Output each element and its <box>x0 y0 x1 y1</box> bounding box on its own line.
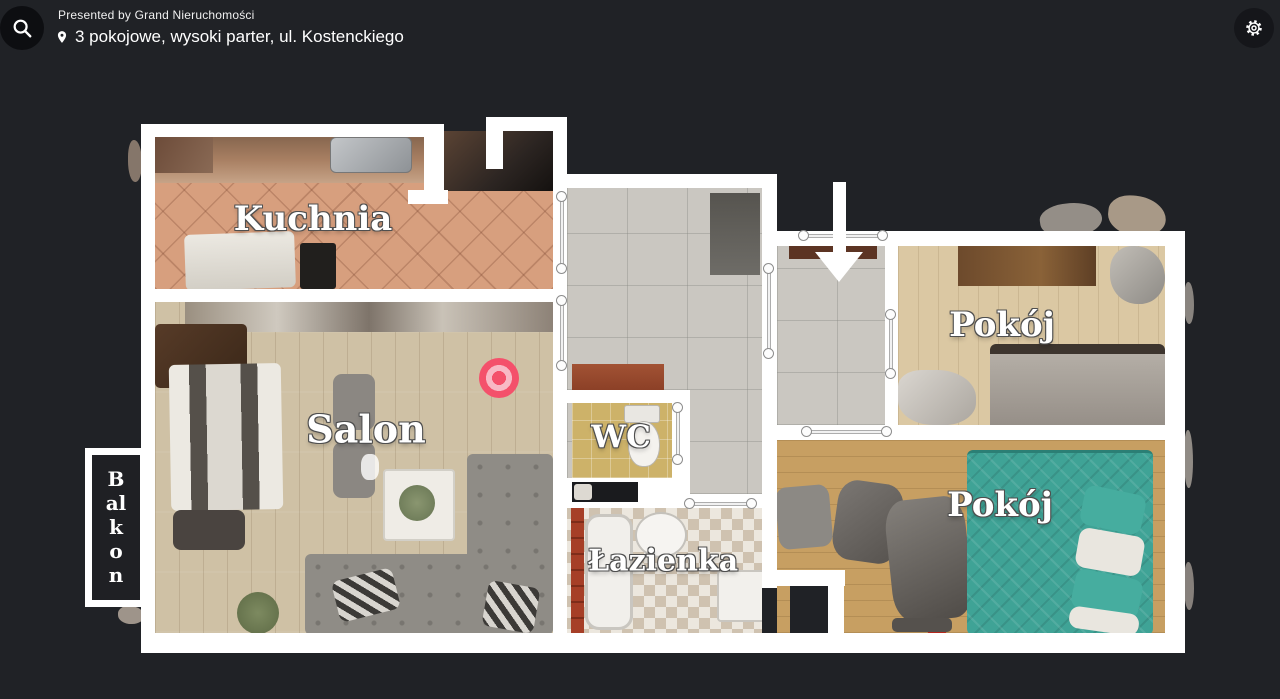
entrance-arrow[interactable] <box>815 182 863 282</box>
wall-segment <box>408 190 448 204</box>
storage-niche <box>572 482 638 502</box>
room-living[interactable] <box>155 302 553 633</box>
wall-segment <box>1165 231 1185 653</box>
floorplan-viewer: { "header": { "presented_by": "Presented… <box>0 0 1280 699</box>
door-marker <box>885 309 896 379</box>
room-label-wc: WC <box>591 419 651 455</box>
scan-artifact <box>1184 430 1193 488</box>
wall-segment <box>141 124 433 137</box>
niche-fixture <box>574 484 592 500</box>
scan-artifact <box>1184 562 1194 610</box>
sofa-pillow <box>481 580 540 633</box>
dining-chair <box>173 510 245 550</box>
wall-segment <box>885 231 1185 246</box>
scan-artifact <box>1184 282 1194 324</box>
settings-button[interactable] <box>1234 8 1274 48</box>
dining-table <box>169 363 284 511</box>
room-label-bathroom: Łazienka <box>588 544 738 579</box>
room-label-balcony: Balkon <box>103 467 129 587</box>
kitchen-cabinet <box>155 131 213 173</box>
position-marker[interactable] <box>479 358 519 398</box>
door-marker <box>556 191 567 274</box>
scan-artifact <box>128 140 142 182</box>
presented-by-text: Presented by Grand Nieruchomości <box>58 8 255 22</box>
clutter <box>892 618 952 632</box>
page-title: 3 pokojowe, wysoki parter, ul. Kostencki… <box>75 27 404 47</box>
hall-wardrobe <box>710 193 760 275</box>
chandelier <box>361 454 379 480</box>
door-marker <box>763 263 774 359</box>
wall-segment <box>560 390 690 403</box>
armchair <box>777 484 834 550</box>
gear-icon <box>1243 17 1265 39</box>
door-marker <box>684 498 757 509</box>
table-plant <box>399 485 435 521</box>
scan-artifact <box>898 370 976 425</box>
wall-segment <box>141 289 567 302</box>
room-label-bedroom-bottom: Pokój <box>947 485 1053 525</box>
kitchen-appliance <box>300 243 336 289</box>
down-arrow-icon <box>833 182 846 254</box>
wall-segment <box>560 174 775 188</box>
door-marker <box>672 402 683 465</box>
door-marker <box>556 295 567 371</box>
down-arrow-head <box>815 252 863 282</box>
room-label-living: Salon <box>306 407 425 452</box>
kitchen-table <box>184 231 296 289</box>
wall-segment <box>828 570 844 653</box>
hall-cabinet <box>572 364 664 392</box>
bed <box>990 354 1165 425</box>
location-row: 3 pokojowe, wysoki parter, ul. Kostencki… <box>55 27 404 47</box>
kitchen-sink <box>330 137 412 173</box>
floor-plant <box>237 592 279 633</box>
bathroom-tiles <box>571 508 584 633</box>
search-icon <box>11 17 33 39</box>
room-label-kitchen: Kuchnia <box>234 199 393 239</box>
scan-artifact <box>1110 246 1165 304</box>
search-button[interactable] <box>0 6 44 50</box>
desk <box>958 246 1096 286</box>
wall-notch <box>790 586 828 633</box>
door-marker <box>801 426 892 437</box>
wall-segment <box>141 633 1185 653</box>
room-label-bedroom-top: Pokój <box>949 305 1055 345</box>
map-pin-icon <box>55 28 69 46</box>
